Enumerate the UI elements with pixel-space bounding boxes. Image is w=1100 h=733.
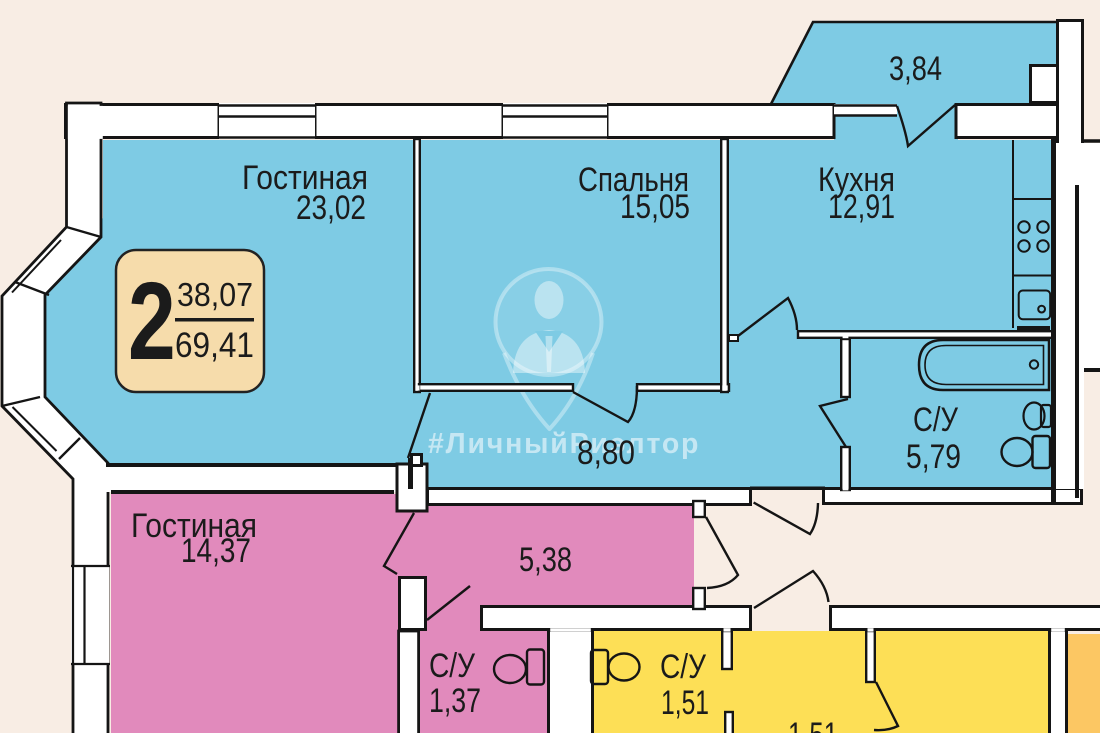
svg-text:С/У: С/У — [660, 648, 706, 686]
svg-text:1,51: 1,51 — [661, 684, 709, 722]
svg-text:23,02: 23,02 — [296, 189, 366, 227]
svg-text:С/У: С/У — [429, 647, 475, 685]
svg-text:12,91: 12,91 — [828, 188, 895, 226]
svg-text:2: 2 — [128, 260, 176, 383]
svg-text:38,07: 38,07 — [177, 276, 253, 313]
svg-text:69,41: 69,41 — [175, 326, 254, 365]
svg-text:3,84: 3,84 — [889, 50, 942, 88]
svg-text:8,80: 8,80 — [577, 434, 635, 472]
svg-text:1,37: 1,37 — [429, 682, 481, 720]
svg-text:5,79: 5,79 — [906, 438, 961, 476]
svg-text:14,37: 14,37 — [181, 532, 251, 570]
svg-text:1,51: 1,51 — [788, 716, 838, 733]
svg-text:#ЛичныйРиэлтор: #ЛичныйРиэлтор — [428, 428, 700, 460]
svg-text:15,05: 15,05 — [620, 188, 690, 226]
svg-text:С/У: С/У — [913, 401, 958, 439]
svg-text:5,38: 5,38 — [519, 541, 572, 579]
